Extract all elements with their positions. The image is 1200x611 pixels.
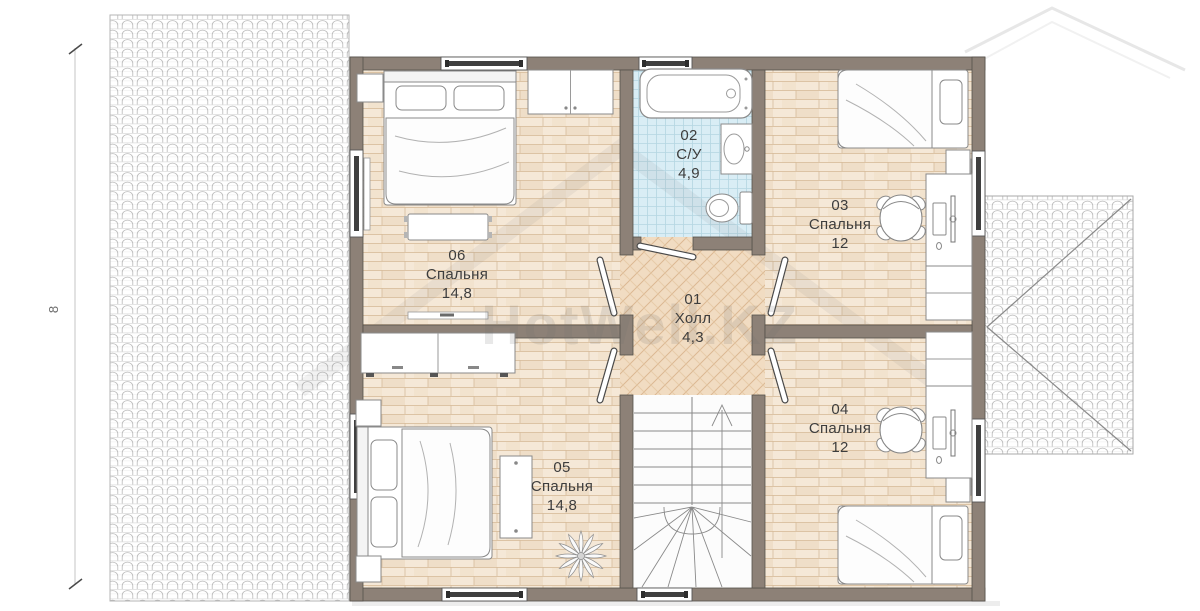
faint-roof-ridge bbox=[965, 8, 1185, 78]
keyboard bbox=[933, 203, 946, 235]
room-area: 4,9 bbox=[637, 164, 741, 183]
wardrobe bbox=[528, 70, 613, 114]
room-name: С/У bbox=[637, 145, 741, 164]
room-number: 02 bbox=[637, 126, 741, 145]
window bbox=[637, 588, 692, 601]
desk-cabinet bbox=[926, 332, 972, 386]
desk bbox=[926, 174, 972, 266]
pillow bbox=[454, 86, 504, 110]
nightstand bbox=[946, 150, 970, 174]
room-number: 01 bbox=[641, 290, 745, 309]
window bbox=[350, 150, 363, 237]
window bbox=[972, 419, 985, 502]
room-number: 06 bbox=[392, 246, 522, 265]
left-roof-section bbox=[110, 15, 349, 601]
mouse bbox=[937, 243, 942, 250]
cabinet-row bbox=[361, 333, 515, 377]
blanket bbox=[386, 118, 514, 204]
window bbox=[639, 57, 692, 70]
room-label-04: 04 Спальня 12 bbox=[775, 400, 905, 458]
room-name: Спальня bbox=[497, 477, 627, 496]
room-name: Спальня bbox=[392, 265, 522, 284]
keyboard bbox=[933, 417, 946, 449]
pillow bbox=[396, 86, 446, 110]
room-name: Холл bbox=[641, 309, 745, 328]
blanket bbox=[838, 506, 932, 584]
mouse bbox=[937, 457, 942, 464]
window bbox=[441, 57, 527, 70]
room-label-06: 06 Спальня 14,8 bbox=[392, 246, 522, 304]
room-name: Спальня bbox=[775, 215, 905, 234]
bathtub bbox=[640, 69, 752, 118]
desk-cabinet bbox=[926, 266, 972, 320]
room-label-01: 01 Холл 4,3 bbox=[641, 290, 745, 348]
room-label-05: 05 Спальня 14,8 bbox=[497, 458, 627, 516]
room-area: 14,8 bbox=[497, 496, 627, 515]
nightstand bbox=[356, 556, 381, 582]
floor-plan-drawing bbox=[0, 0, 1200, 611]
monitor bbox=[951, 196, 955, 242]
single-bed bbox=[838, 506, 968, 584]
nightstand bbox=[946, 478, 970, 502]
nightstand bbox=[357, 74, 383, 102]
dimension-label: 8 bbox=[46, 306, 61, 313]
room-label-03: 03 Спальня 12 bbox=[775, 196, 905, 254]
room-number: 04 bbox=[775, 400, 905, 419]
room-area: 12 bbox=[775, 438, 905, 457]
room-area: 14,8 bbox=[392, 284, 522, 303]
nightstand bbox=[356, 400, 381, 426]
pillow bbox=[940, 516, 962, 560]
blanket bbox=[838, 70, 932, 148]
right-roof-section bbox=[985, 196, 1133, 454]
double-bed bbox=[384, 71, 516, 205]
pillow bbox=[371, 440, 397, 490]
pillow bbox=[371, 497, 397, 547]
dimension-line bbox=[69, 44, 82, 589]
floor-stairwell bbox=[633, 395, 752, 588]
room-number: 03 bbox=[775, 196, 905, 215]
blanket bbox=[402, 429, 490, 557]
room-name: Спальня bbox=[775, 419, 905, 438]
room-label-02: 02 С/У 4,9 bbox=[637, 126, 741, 184]
floor-plan-canvas: 06 Спальня 14,8 02 С/У 4,9 03 Спальня 12… bbox=[0, 0, 1200, 611]
bench bbox=[404, 214, 492, 240]
desk bbox=[926, 386, 972, 478]
double-bed bbox=[357, 427, 492, 559]
room-area: 12 bbox=[775, 234, 905, 253]
window bbox=[442, 588, 527, 601]
room-number: 05 bbox=[497, 458, 627, 477]
wall-exterior-right bbox=[972, 57, 985, 601]
toilet bbox=[706, 192, 752, 224]
wall-shelf bbox=[408, 312, 488, 319]
building-shadow bbox=[352, 601, 1000, 606]
monitor bbox=[951, 410, 955, 456]
room-area: 4,3 bbox=[641, 328, 745, 347]
single-bed bbox=[838, 70, 968, 148]
window bbox=[972, 151, 985, 236]
pillow bbox=[940, 80, 962, 124]
